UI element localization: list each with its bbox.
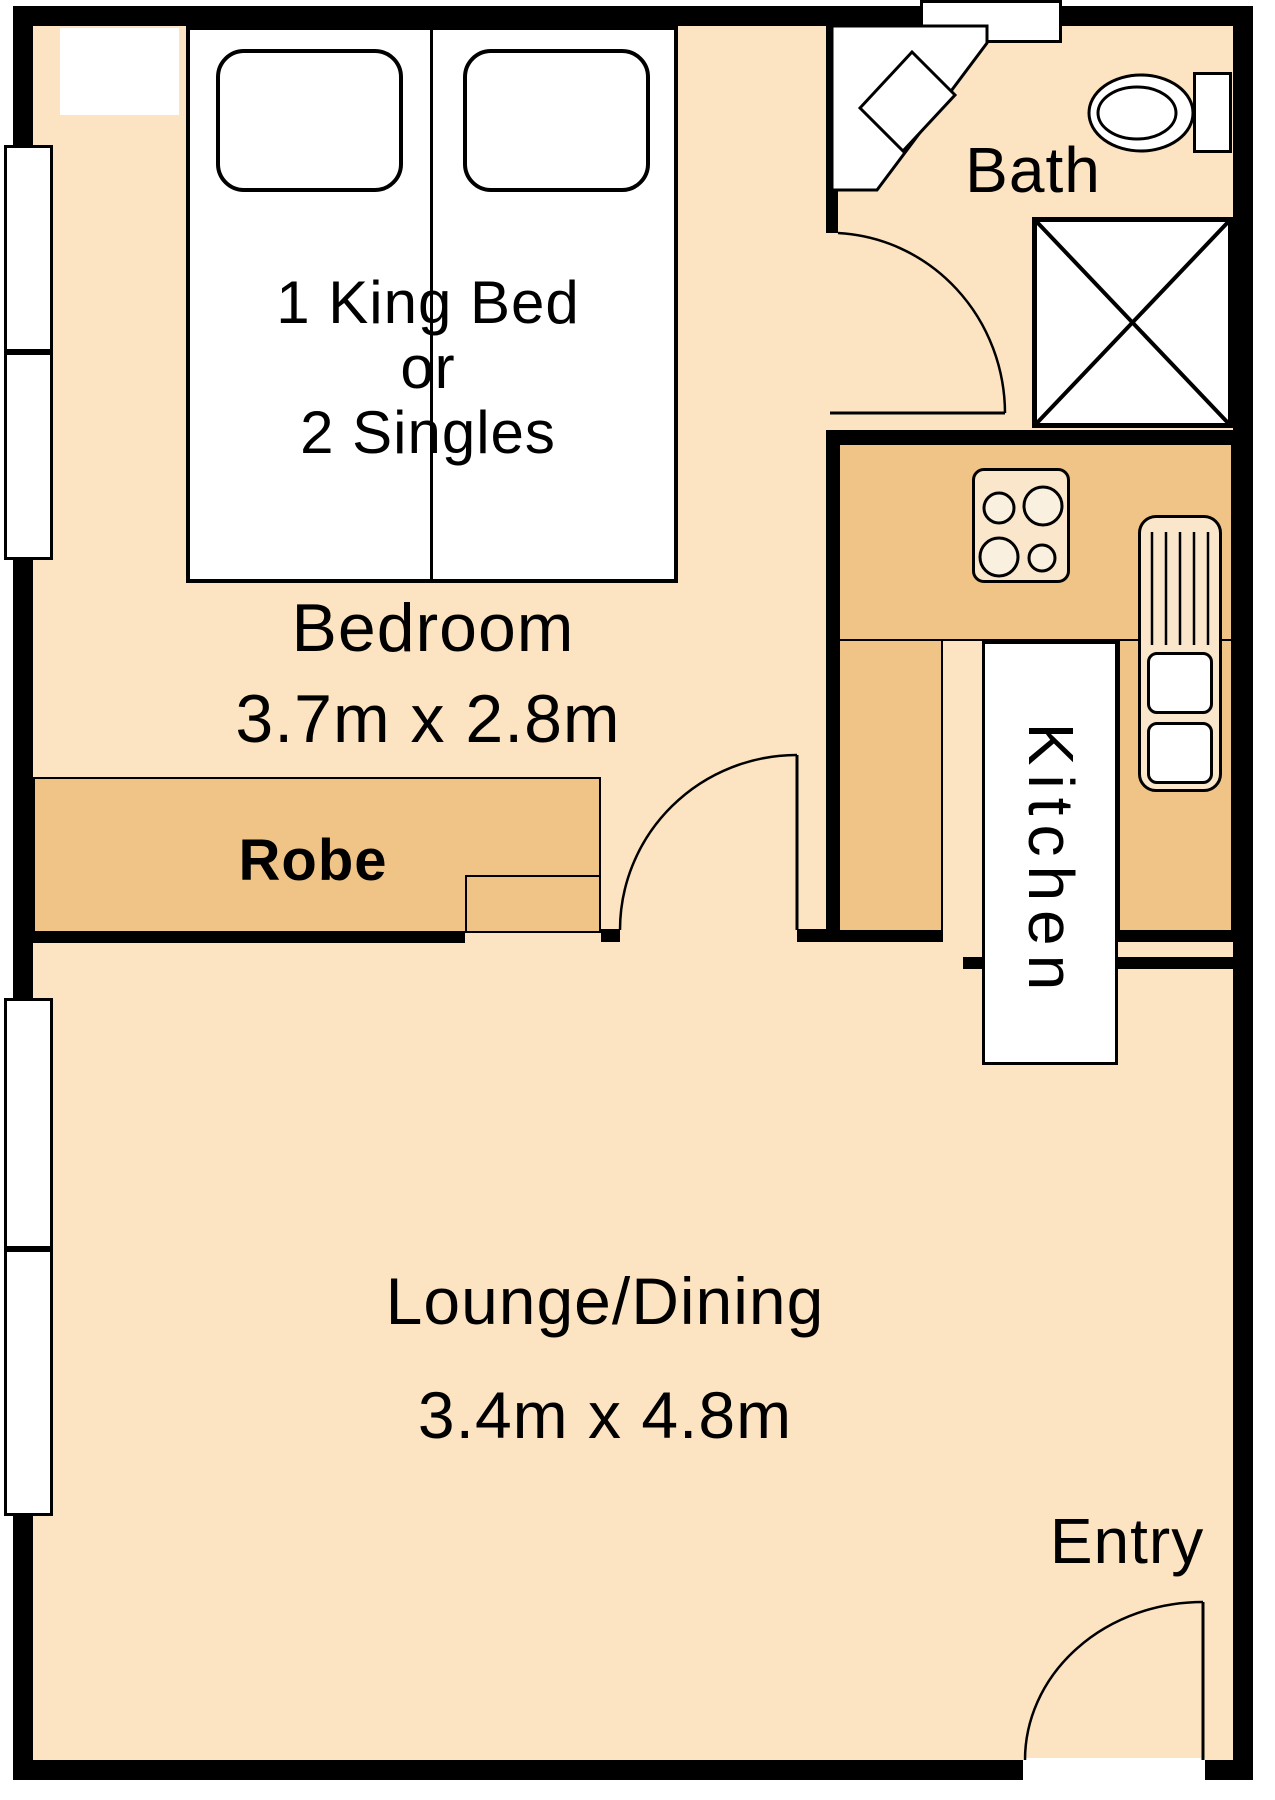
bath-label: Bath [933, 138, 1133, 203]
bedroom-dimensions: 3.7m x 2.8m [228, 685, 628, 754]
burner-4 [1029, 545, 1055, 571]
robe-label: Robe [163, 831, 463, 890]
burner-1 [984, 493, 1014, 523]
bedroom-label: Bedroom [233, 594, 633, 663]
floorplan: 1 King Bed or 2 Singles Bedroom 3.7m x 2… [0, 0, 1275, 1800]
entry-door-swing [1025, 1602, 1203, 1760]
bed-label-line1: 1 King Bed [178, 270, 678, 335]
bath-door-swing [838, 233, 1005, 413]
bed-label-line2: or [178, 335, 678, 400]
bed-label: 1 King Bed or 2 Singles [178, 270, 678, 465]
sink-drainer-lines [1152, 532, 1208, 645]
bedroom-door-swing [620, 755, 797, 930]
burner-3 [980, 538, 1018, 576]
bed-label-line3: 2 Singles [178, 400, 678, 465]
lounge-label: Lounge/Dining [305, 1268, 905, 1335]
entry-label: Entry [1027, 1509, 1227, 1574]
burner-2 [1024, 487, 1062, 525]
kitchen-label: Kitchen [1017, 641, 1083, 1081]
lounge-dimensions: 3.4m x 4.8m [305, 1382, 905, 1449]
